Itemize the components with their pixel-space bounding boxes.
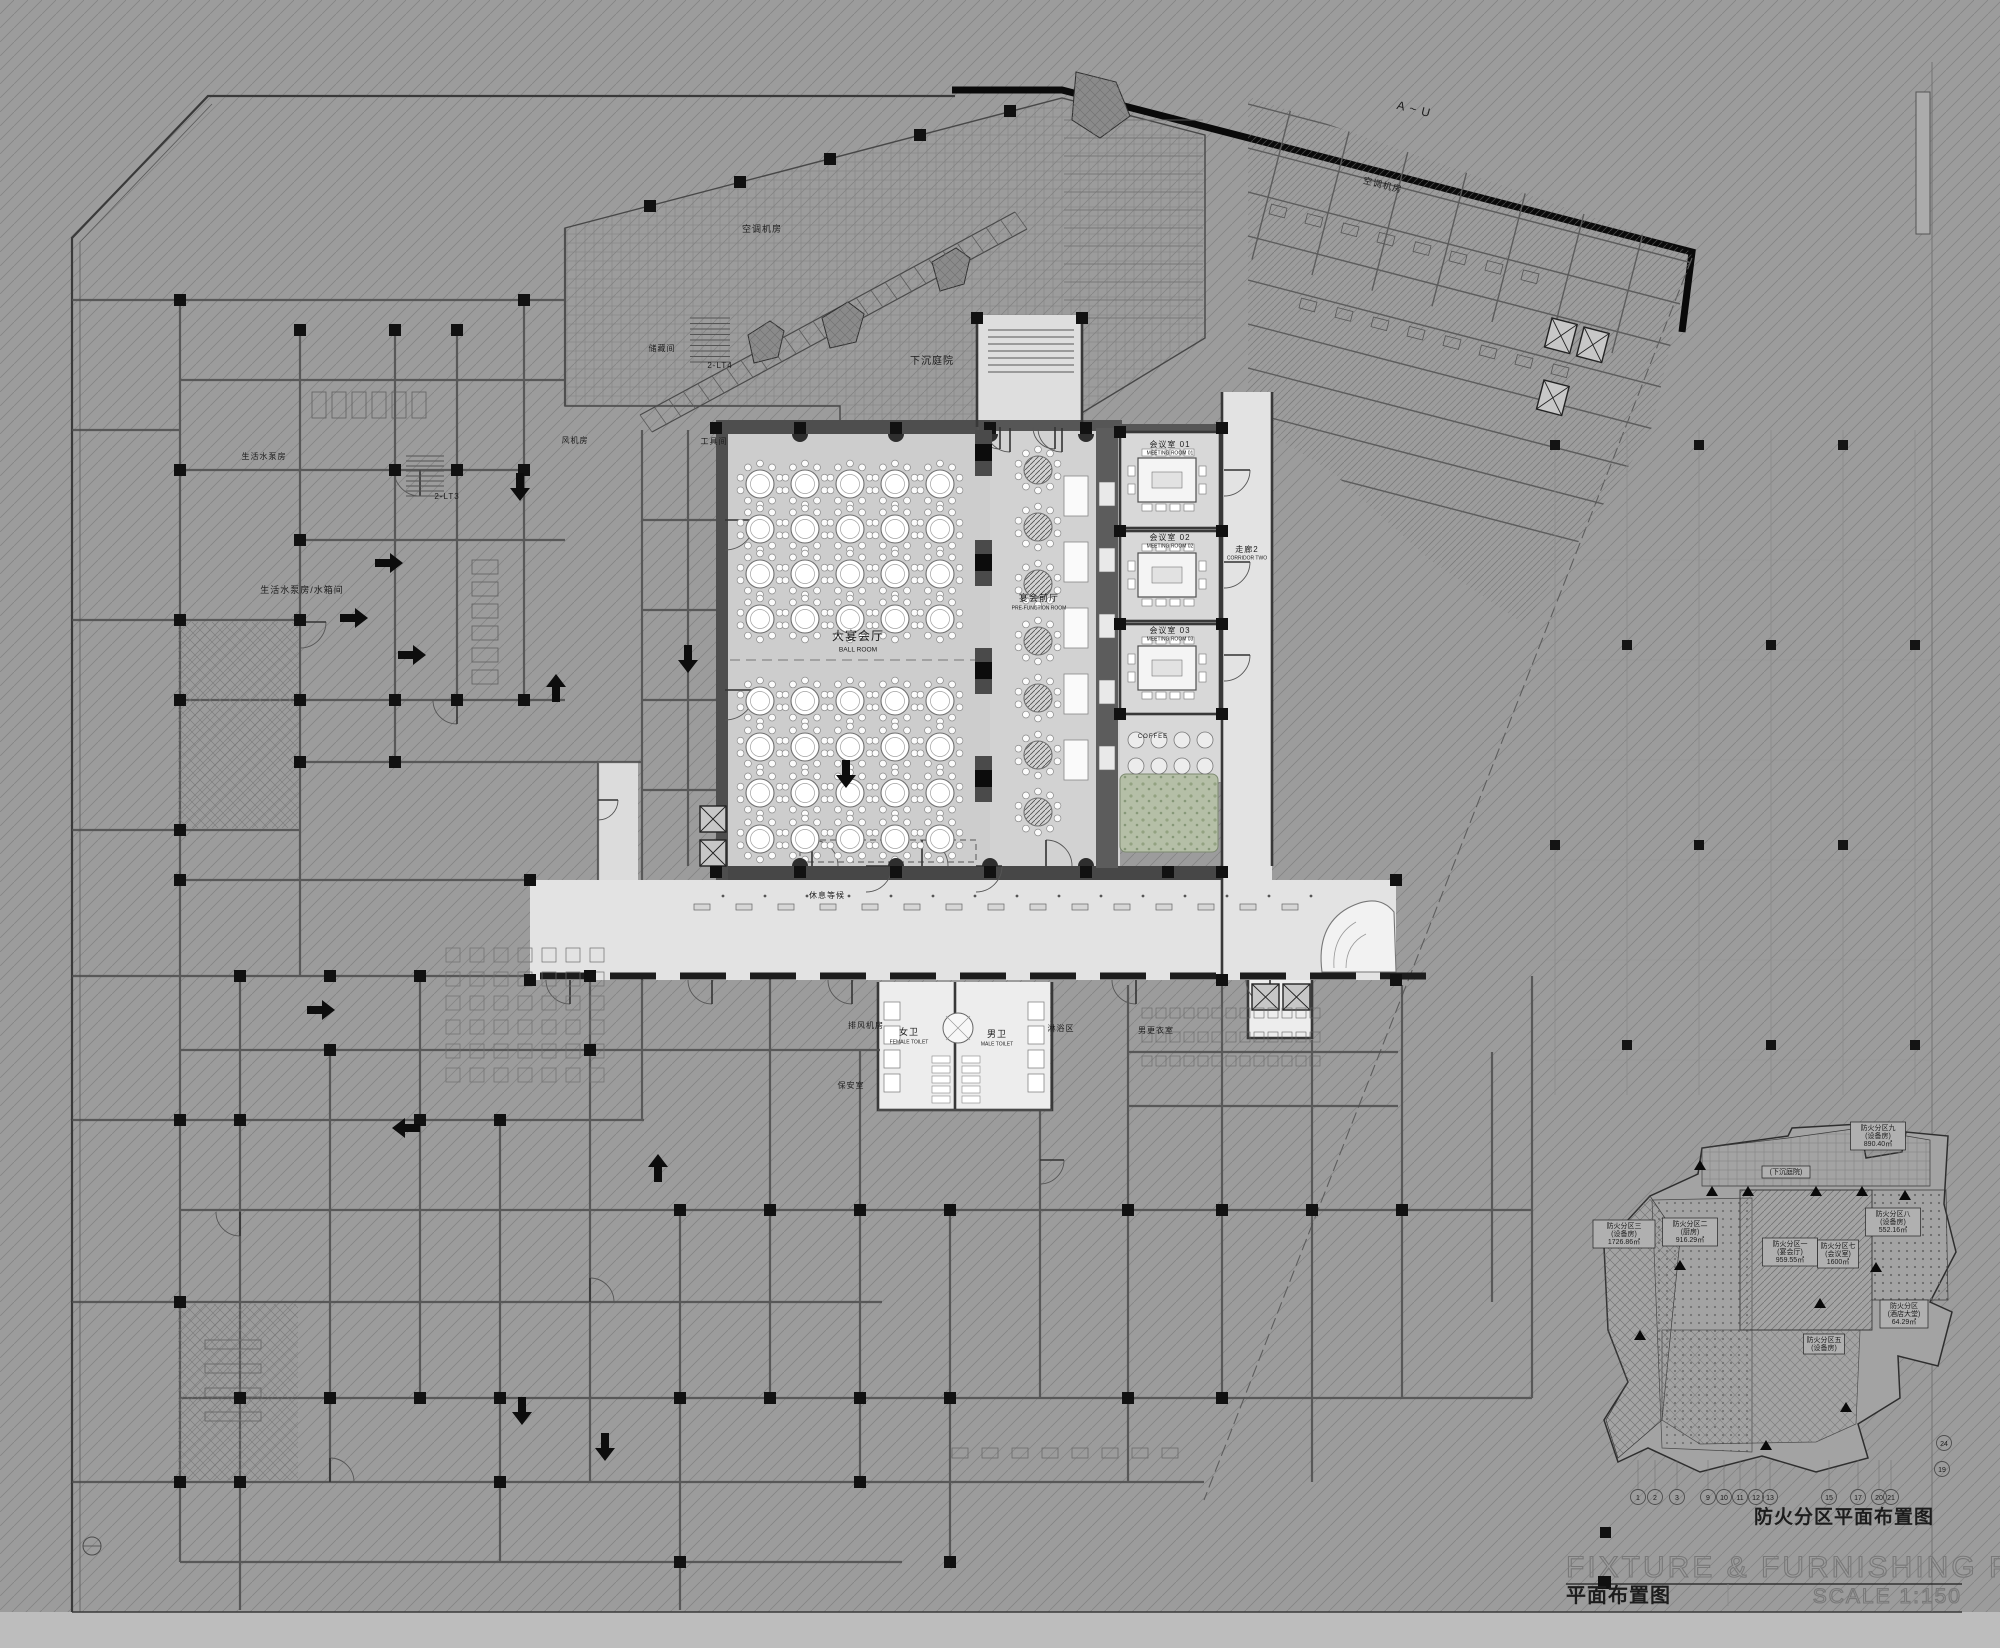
chair bbox=[949, 542, 956, 549]
chair bbox=[872, 783, 879, 790]
ceiling-dot bbox=[974, 895, 977, 898]
chair bbox=[859, 806, 866, 813]
chair bbox=[880, 497, 887, 504]
chair bbox=[917, 622, 924, 629]
room-label-cn: 2-LT4 bbox=[707, 361, 732, 370]
table-inlay bbox=[1152, 472, 1182, 488]
column bbox=[1216, 1392, 1228, 1404]
column bbox=[524, 974, 536, 986]
column bbox=[451, 464, 463, 476]
chair bbox=[1047, 507, 1054, 514]
chair bbox=[745, 464, 752, 471]
column bbox=[890, 866, 902, 878]
fire-zone-text: 1600㎡ bbox=[1827, 1258, 1850, 1266]
room-label-cn: 女卫 bbox=[899, 1026, 919, 1037]
chair bbox=[814, 714, 821, 721]
chair bbox=[1156, 504, 1166, 511]
room-label: 会议室 01MEETING ROOM 01 bbox=[1147, 439, 1194, 457]
chair bbox=[904, 714, 911, 721]
chair bbox=[880, 806, 887, 813]
column bbox=[1122, 1392, 1134, 1404]
chair bbox=[859, 497, 866, 504]
chair bbox=[737, 829, 744, 836]
chair bbox=[790, 852, 797, 859]
chair bbox=[782, 487, 789, 494]
chair bbox=[847, 856, 854, 863]
chair bbox=[1047, 825, 1054, 832]
bench bbox=[820, 904, 836, 910]
chair bbox=[956, 564, 963, 571]
chair bbox=[847, 677, 854, 684]
chair bbox=[904, 681, 911, 688]
chair bbox=[745, 632, 752, 639]
chair bbox=[956, 750, 963, 757]
chair bbox=[814, 542, 821, 549]
room-label-cn: 会议室 02 bbox=[1149, 532, 1190, 542]
ceiling-dot bbox=[1184, 895, 1187, 898]
chair bbox=[1035, 788, 1042, 795]
site-column bbox=[1694, 840, 1704, 850]
bench bbox=[862, 904, 878, 910]
chair bbox=[859, 819, 866, 826]
chair bbox=[956, 622, 963, 629]
wall-niche bbox=[1099, 746, 1115, 770]
fire-zone-text: 防火分区一 bbox=[1773, 1239, 1808, 1248]
chair bbox=[904, 587, 911, 594]
chair bbox=[835, 681, 842, 688]
column bbox=[971, 312, 983, 324]
chair bbox=[872, 691, 879, 698]
chair bbox=[1047, 735, 1054, 742]
chair bbox=[949, 714, 956, 721]
fire-zone-label: 防火分区一(宴会厅)959.55㎡ bbox=[1763, 1238, 1818, 1266]
column bbox=[1004, 105, 1016, 117]
chair bbox=[737, 487, 744, 494]
wash-basin bbox=[962, 1076, 980, 1083]
chair bbox=[917, 796, 924, 803]
chair bbox=[872, 829, 879, 836]
chair bbox=[814, 464, 821, 471]
chair bbox=[917, 577, 924, 584]
chair bbox=[745, 806, 752, 813]
chair bbox=[1047, 450, 1054, 457]
chair bbox=[782, 609, 789, 616]
room-label: 储藏间 bbox=[649, 343, 676, 353]
chair bbox=[835, 554, 842, 561]
chair bbox=[949, 681, 956, 688]
column bbox=[1162, 866, 1174, 878]
column bbox=[294, 614, 306, 626]
chair bbox=[892, 677, 899, 684]
chair bbox=[769, 852, 776, 859]
chair bbox=[745, 681, 752, 688]
bench bbox=[694, 904, 710, 910]
chair bbox=[835, 464, 842, 471]
column bbox=[944, 1204, 956, 1216]
column bbox=[294, 694, 306, 706]
chair bbox=[745, 599, 752, 606]
column bbox=[1216, 866, 1228, 878]
chair bbox=[872, 474, 879, 481]
chair bbox=[835, 806, 842, 813]
bench bbox=[1030, 904, 1046, 910]
chair bbox=[892, 460, 899, 467]
room-label: 休息等候 bbox=[809, 890, 845, 900]
chair bbox=[737, 750, 744, 757]
chair bbox=[1199, 561, 1206, 571]
column bbox=[294, 324, 306, 336]
ceiling-dot bbox=[1310, 895, 1313, 898]
room-label-cn: 工具间 bbox=[701, 437, 728, 446]
column bbox=[524, 874, 536, 886]
grid-bubble-number: 20 bbox=[1875, 1495, 1883, 1502]
chair bbox=[757, 856, 764, 863]
chair bbox=[769, 542, 776, 549]
chair bbox=[917, 704, 924, 711]
room-label-cn: 风机房 bbox=[562, 435, 589, 445]
wall-niche bbox=[1099, 482, 1115, 506]
chair bbox=[949, 497, 956, 504]
room-label: 会议室 02MEETING ROOM 02 bbox=[1147, 532, 1194, 550]
room-label: 下沉庭院 bbox=[910, 354, 954, 367]
conference-set bbox=[1128, 637, 1206, 699]
chair bbox=[1047, 768, 1054, 775]
chair bbox=[745, 554, 752, 561]
chair bbox=[827, 691, 834, 698]
fire-zone-label: (下沉庭院) bbox=[1762, 1166, 1810, 1178]
chair bbox=[835, 587, 842, 594]
chair bbox=[1142, 504, 1152, 511]
table-top bbox=[1024, 741, 1052, 769]
room-label-cn: 排风机房 bbox=[848, 1020, 884, 1030]
toilet-stall bbox=[884, 1050, 900, 1068]
chair bbox=[872, 577, 879, 584]
chair bbox=[859, 760, 866, 767]
chair bbox=[859, 587, 866, 594]
column bbox=[324, 1044, 336, 1056]
chair bbox=[956, 842, 963, 849]
chair bbox=[949, 773, 956, 780]
chair bbox=[790, 819, 797, 826]
north-lobby-floor bbox=[977, 315, 1082, 427]
ceiling-dot bbox=[764, 895, 767, 898]
chair bbox=[904, 760, 911, 767]
service-console bbox=[1064, 608, 1088, 648]
chair bbox=[745, 760, 752, 767]
chair bbox=[1128, 579, 1135, 589]
chair bbox=[904, 509, 911, 516]
chair bbox=[757, 505, 764, 512]
chair bbox=[757, 636, 764, 643]
chair bbox=[782, 829, 789, 836]
chair bbox=[1047, 540, 1054, 547]
chair bbox=[1023, 678, 1030, 685]
chair bbox=[745, 542, 752, 549]
chair bbox=[949, 727, 956, 734]
chair bbox=[949, 509, 956, 516]
chair bbox=[917, 750, 924, 757]
chair bbox=[917, 519, 924, 526]
service-pillar bbox=[975, 770, 992, 787]
fire-zone-text: 防火分区九 bbox=[1861, 1123, 1896, 1132]
chair bbox=[917, 842, 924, 849]
chair bbox=[1054, 517, 1061, 524]
chair bbox=[1170, 599, 1180, 606]
chair bbox=[769, 819, 776, 826]
room-label-en: MEETING ROOM 01 bbox=[1147, 451, 1194, 457]
room-label-cn: 下沉庭院 bbox=[910, 354, 954, 367]
column bbox=[1216, 1204, 1228, 1216]
column bbox=[324, 970, 336, 982]
room-label: 空调机房 bbox=[742, 223, 782, 234]
column bbox=[174, 1476, 186, 1488]
room-label-en: MEETING ROOM 03 bbox=[1147, 637, 1194, 643]
chair bbox=[880, 464, 887, 471]
bench bbox=[736, 904, 752, 910]
chair bbox=[917, 564, 924, 571]
chair bbox=[937, 815, 944, 822]
room-label: 淋浴区 bbox=[1048, 1023, 1075, 1033]
fire-zone-label: 防火分区七(会议室)1600㎡ bbox=[1818, 1240, 1859, 1268]
room-label-cn: 宴会前厅 bbox=[1019, 592, 1059, 603]
wall-niche bbox=[1099, 680, 1115, 704]
chair bbox=[814, 760, 821, 767]
service-console bbox=[1064, 674, 1088, 714]
chair bbox=[892, 505, 899, 512]
chair bbox=[1023, 564, 1030, 571]
chair bbox=[769, 773, 776, 780]
column bbox=[1396, 1204, 1408, 1216]
chair bbox=[737, 532, 744, 539]
chair bbox=[1035, 503, 1042, 510]
chair bbox=[814, 681, 821, 688]
chair bbox=[904, 727, 911, 734]
chair bbox=[757, 460, 764, 467]
fire-zone-text: 防火分区七 bbox=[1821, 1241, 1856, 1250]
chair bbox=[1015, 460, 1022, 467]
column bbox=[1216, 618, 1228, 630]
grid-bubble-number: 9 bbox=[1706, 1495, 1710, 1502]
chair bbox=[1199, 466, 1206, 476]
chair bbox=[1035, 560, 1042, 567]
chair bbox=[949, 806, 956, 813]
column bbox=[389, 324, 401, 336]
fire-zone-text: (设备房) bbox=[1865, 1131, 1891, 1140]
chair bbox=[782, 474, 789, 481]
chair bbox=[949, 599, 956, 606]
grid-bubble-number: 10 bbox=[1720, 1495, 1728, 1502]
chair bbox=[1023, 711, 1030, 718]
chair bbox=[769, 497, 776, 504]
column bbox=[174, 874, 186, 886]
chair bbox=[827, 519, 834, 526]
chair bbox=[859, 852, 866, 859]
chair bbox=[790, 727, 797, 734]
sheet-margin bbox=[0, 1612, 2000, 1648]
chair bbox=[1054, 815, 1061, 822]
column bbox=[1122, 1204, 1134, 1216]
chair bbox=[937, 595, 944, 602]
column bbox=[710, 866, 722, 878]
fire-zone-text: (设备房) bbox=[1811, 1343, 1837, 1352]
grid-bubble-number: 21 bbox=[1887, 1495, 1895, 1502]
chair bbox=[847, 595, 854, 602]
chair bbox=[757, 723, 764, 730]
chair bbox=[757, 677, 764, 684]
chair bbox=[782, 842, 789, 849]
chair bbox=[925, 497, 932, 504]
chair bbox=[769, 554, 776, 561]
room-label-en: MALE TOILET bbox=[981, 1042, 1013, 1048]
chair bbox=[1015, 701, 1022, 708]
chair bbox=[790, 509, 797, 516]
chair bbox=[782, 564, 789, 571]
plant-room-hatch bbox=[178, 622, 298, 828]
chair bbox=[827, 474, 834, 481]
chair bbox=[847, 815, 854, 822]
bench bbox=[946, 904, 962, 910]
chair bbox=[925, 554, 932, 561]
room-label-cn: 男更衣室 bbox=[1138, 1025, 1174, 1035]
chair bbox=[872, 842, 879, 849]
chair bbox=[827, 737, 834, 744]
column bbox=[389, 756, 401, 768]
chair bbox=[1199, 654, 1206, 664]
chair bbox=[827, 783, 834, 790]
site-column bbox=[1910, 640, 1920, 650]
column bbox=[1114, 708, 1126, 720]
ceiling-dot bbox=[1016, 895, 1019, 898]
chair bbox=[827, 487, 834, 494]
chair bbox=[1156, 692, 1166, 699]
service-pillar bbox=[975, 554, 992, 571]
fire-zone-text: 890.40㎡ bbox=[1864, 1140, 1892, 1148]
chair bbox=[827, 704, 834, 711]
room-label: 风机房 bbox=[562, 435, 589, 445]
room-label: COFFEE bbox=[1138, 734, 1168, 740]
chair bbox=[1023, 507, 1030, 514]
chair bbox=[1015, 631, 1022, 638]
chair bbox=[814, 509, 821, 516]
chair bbox=[1128, 672, 1135, 682]
chair bbox=[872, 487, 879, 494]
room-label-cn: 会议室 03 bbox=[1149, 625, 1190, 635]
chair bbox=[949, 852, 956, 859]
chair bbox=[835, 599, 842, 606]
column bbox=[584, 970, 596, 982]
site-column bbox=[1622, 640, 1632, 650]
coffee-table bbox=[1128, 758, 1144, 774]
chair bbox=[880, 587, 887, 594]
chair bbox=[745, 773, 752, 780]
chair bbox=[827, 842, 834, 849]
chair bbox=[814, 554, 821, 561]
bench bbox=[1282, 904, 1298, 910]
chair bbox=[859, 681, 866, 688]
chair bbox=[859, 542, 866, 549]
chair bbox=[1015, 644, 1022, 651]
chair bbox=[802, 460, 809, 467]
chair bbox=[827, 622, 834, 629]
watermark-title: FIXTURE & FURNISHING PLAN bbox=[1566, 1551, 2000, 1584]
column bbox=[914, 129, 926, 141]
column bbox=[234, 1392, 246, 1404]
room-label-cn: 生活水泵房 bbox=[242, 451, 287, 461]
room-label: 会议室 03MEETING ROOM 03 bbox=[1147, 625, 1194, 643]
grid-bubble-number: 2 bbox=[1653, 1495, 1657, 1502]
site-column bbox=[1910, 1040, 1920, 1050]
chair bbox=[892, 815, 899, 822]
chair bbox=[925, 773, 932, 780]
chair bbox=[917, 474, 924, 481]
chair bbox=[1128, 561, 1135, 571]
chair bbox=[814, 819, 821, 826]
fire-plan-title: 防火分区平面布置图 bbox=[1754, 1505, 1934, 1528]
chair bbox=[904, 852, 911, 859]
fire-zone-text: 916.29㎡ bbox=[1676, 1236, 1704, 1244]
chair bbox=[1128, 466, 1135, 476]
chair bbox=[872, 564, 879, 571]
chair bbox=[1054, 530, 1061, 537]
chair bbox=[1199, 484, 1206, 494]
service-pillar bbox=[975, 444, 992, 461]
chair bbox=[925, 464, 932, 471]
table-top bbox=[1024, 627, 1052, 655]
chair bbox=[769, 599, 776, 606]
chair bbox=[949, 587, 956, 594]
column bbox=[1390, 874, 1402, 886]
chair bbox=[1023, 792, 1030, 799]
column bbox=[451, 694, 463, 706]
column bbox=[794, 422, 806, 434]
chair bbox=[1023, 825, 1030, 832]
chair bbox=[956, 829, 963, 836]
chair bbox=[937, 677, 944, 684]
room-label: 保安室 bbox=[838, 1080, 865, 1090]
elevator-shaft bbox=[1283, 984, 1310, 1010]
chair bbox=[859, 714, 866, 721]
chair bbox=[769, 464, 776, 471]
chair bbox=[1184, 692, 1194, 699]
chair bbox=[925, 806, 932, 813]
chair bbox=[949, 819, 956, 826]
chair bbox=[835, 760, 842, 767]
column bbox=[674, 1556, 686, 1568]
chair bbox=[1054, 745, 1061, 752]
chair bbox=[790, 497, 797, 504]
chair bbox=[859, 773, 866, 780]
chair bbox=[769, 587, 776, 594]
wash-basin bbox=[932, 1056, 950, 1063]
ceiling-dot bbox=[1058, 895, 1061, 898]
chair bbox=[782, 577, 789, 584]
chair bbox=[835, 497, 842, 504]
chair bbox=[1035, 674, 1042, 681]
ceiling-dot bbox=[932, 895, 935, 898]
chair bbox=[847, 460, 854, 467]
room-label-cn: 大宴会厅 bbox=[832, 628, 884, 643]
chair bbox=[937, 636, 944, 643]
chair bbox=[1054, 701, 1061, 708]
room-label-en: PRE-FUNCTION ROOM bbox=[1012, 606, 1067, 612]
fire-zone-text: (设备房) bbox=[1611, 1229, 1637, 1238]
elevator-shaft bbox=[1252, 984, 1279, 1010]
chair bbox=[1035, 446, 1042, 453]
chair bbox=[956, 577, 963, 584]
chair bbox=[745, 587, 752, 594]
chair bbox=[1035, 487, 1042, 494]
chair bbox=[1054, 631, 1061, 638]
